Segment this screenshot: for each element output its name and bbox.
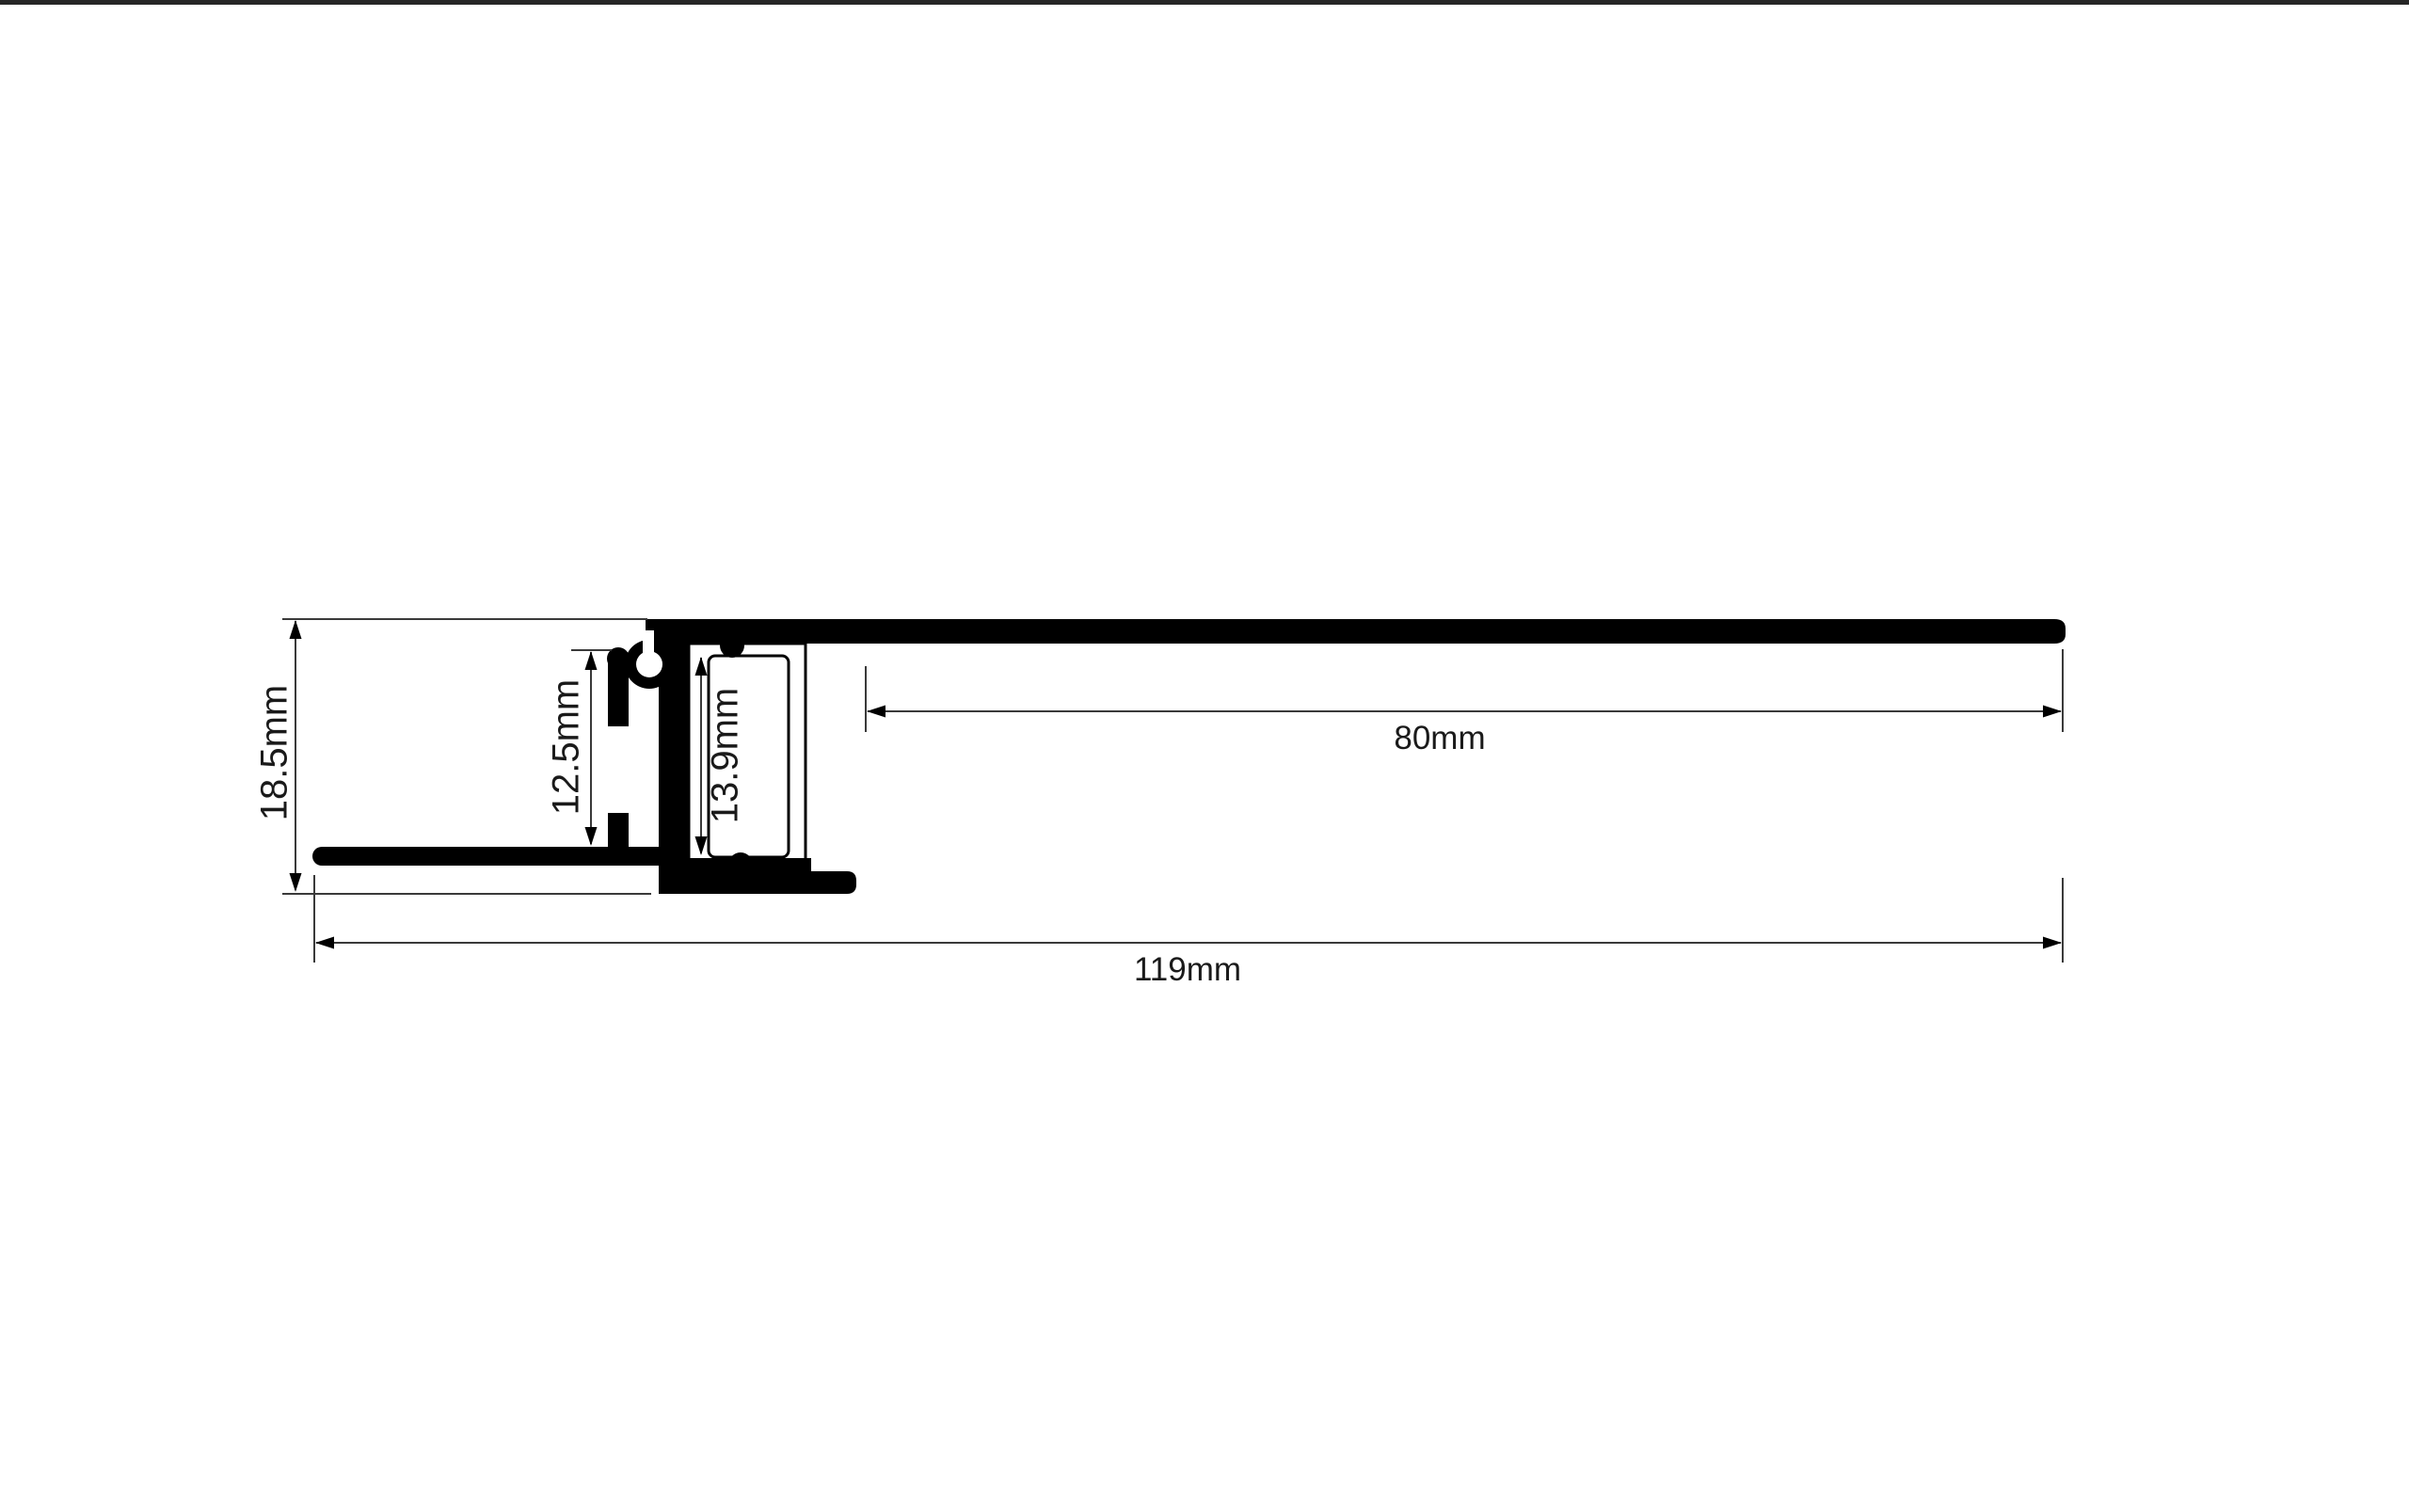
- arrowhead-down: [290, 873, 302, 892]
- dim-label-flange-length: 80mm: [1394, 720, 1485, 756]
- left-wing: [312, 847, 689, 866]
- arrowhead-right: [2043, 937, 2062, 949]
- arrowhead-down: [585, 827, 598, 846]
- diffuser-clip-top: [720, 633, 744, 658]
- profile-drawing-page: 18.5mm 12.5mm 13.9mm: [0, 0, 2409, 1512]
- window-top-edge-bar: [0, 0, 2409, 5]
- arrowhead-up: [290, 620, 302, 639]
- arrowhead-right: [2043, 706, 2062, 718]
- bottom-base: [659, 858, 856, 894]
- dim-label-recess-depth: 12.5mm: [546, 679, 587, 816]
- lower-fin: [608, 813, 629, 851]
- clip-screw-hole: [636, 651, 662, 677]
- base-lower-step: [659, 871, 856, 894]
- dim-label-diffuser-height: 13.9mm: [705, 688, 746, 824]
- dimension-recess-depth: 12.5mm: [546, 650, 612, 846]
- arrowhead-left: [867, 706, 885, 718]
- dimensions: 18.5mm 12.5mm 13.9mm: [254, 619, 2063, 988]
- clip-slit: [643, 630, 654, 653]
- dim-label-overall-width: 119mm: [1134, 951, 1241, 988]
- upper-fin: [608, 659, 629, 726]
- dim-label-overall-height: 18.5mm: [254, 685, 295, 821]
- dimension-overall-width: 119mm: [314, 875, 2063, 988]
- arrowhead-left: [315, 937, 334, 949]
- led-profile-cross-section-drawing: 18.5mm 12.5mm 13.9mm: [0, 0, 2409, 1512]
- arrowhead-up: [585, 651, 598, 670]
- dimension-flange-length: 80mm: [866, 649, 2063, 756]
- top-flange: [646, 619, 2066, 644]
- diffuser-clip-bottom: [728, 852, 753, 877]
